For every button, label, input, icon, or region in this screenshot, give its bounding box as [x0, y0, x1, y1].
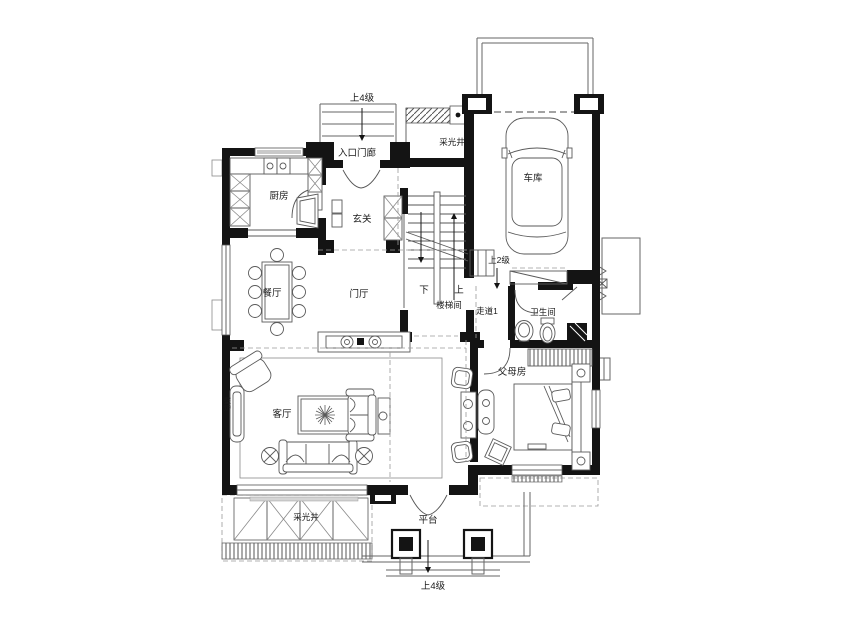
hall-console-stove: [318, 332, 410, 352]
label-entry-hall: 门厅: [349, 288, 369, 300]
label-garage: 车库: [523, 172, 543, 184]
label-light-well-bottom: 采光井: [293, 512, 319, 522]
label-steps-up2: 上2级: [488, 255, 510, 265]
light-well-top: [406, 106, 466, 158]
ottoman: [451, 441, 474, 464]
entry-double-door: [343, 170, 380, 188]
side-table: [262, 448, 279, 465]
label-stairwell: 楼梯间: [436, 300, 462, 310]
dining-left-window: [222, 245, 230, 335]
platform-double-door: [410, 495, 447, 515]
label-living-room: 客厅: [272, 408, 292, 420]
nightstand: [572, 452, 590, 470]
window-sill-bumps: [212, 160, 222, 330]
label-steps-up4-bottom: 上4级: [421, 580, 446, 592]
stool: [485, 439, 512, 466]
ottoman: [451, 367, 474, 390]
fireplace: [230, 386, 244, 442]
label-stair-up: 上: [454, 285, 464, 296]
label-light-well-top: 采光井: [439, 137, 465, 147]
bedroom-furniture: [478, 349, 592, 470]
entry-steps-top: [320, 104, 396, 148]
floor-plan-page: 上4级 入口门廊 采光井 厨房 玄关 车库 餐厅 门厅 下 上 楼梯间 上2级 …: [0, 0, 850, 637]
nightstand: [572, 364, 590, 382]
coffee-table: [298, 396, 352, 434]
bed: [514, 378, 581, 456]
terrace-bottom-right: [480, 476, 598, 506]
garage-entry-steps: [470, 250, 567, 284]
bedroom-right-window: [592, 390, 600, 428]
label-corridor: 走道1: [476, 306, 498, 316]
sofa-three-seat: [279, 440, 357, 474]
living-bottom-window: [237, 485, 367, 501]
bedroom-bottom-window: [512, 465, 562, 475]
living-room-furniture: [228, 350, 476, 478]
column: [392, 530, 420, 574]
garage-car-icon: [502, 118, 572, 254]
toilet-icon: [540, 318, 555, 343]
kitchen-top-window: [255, 148, 303, 156]
label-kitchen: 厨房: [269, 190, 288, 202]
platform: [362, 492, 530, 576]
label-fireplace: 壁炉: [224, 396, 232, 412]
label-steps-up4-top: 上4级: [350, 92, 375, 104]
wall-cabinet: [461, 392, 476, 438]
sofa-two-seat: [346, 389, 376, 441]
label-parents-room: 父母房: [498, 366, 527, 378]
floor-plan-drawing: 上4级 入口门廊 采光井 厨房 玄关 车库 餐厅 门厅 下 上 楼梯间 上2级 …: [0, 0, 850, 637]
label-stair-down: 下: [419, 285, 429, 296]
label-entry-porch: 入口门廊: [338, 147, 377, 159]
light-well-bottom: [222, 495, 372, 561]
tv-console: [378, 398, 390, 434]
column: [464, 530, 492, 574]
sink-icon: [515, 321, 533, 342]
label-foyer: 玄关: [352, 213, 372, 225]
label-dining-room: 餐厅: [262, 287, 282, 299]
ac-platform: [597, 238, 640, 380]
side-table: [356, 448, 373, 465]
bench: [478, 390, 494, 434]
label-bathroom: 卫生间: [530, 307, 556, 317]
label-platform: 平台: [418, 514, 437, 526]
driveway: [477, 38, 593, 96]
